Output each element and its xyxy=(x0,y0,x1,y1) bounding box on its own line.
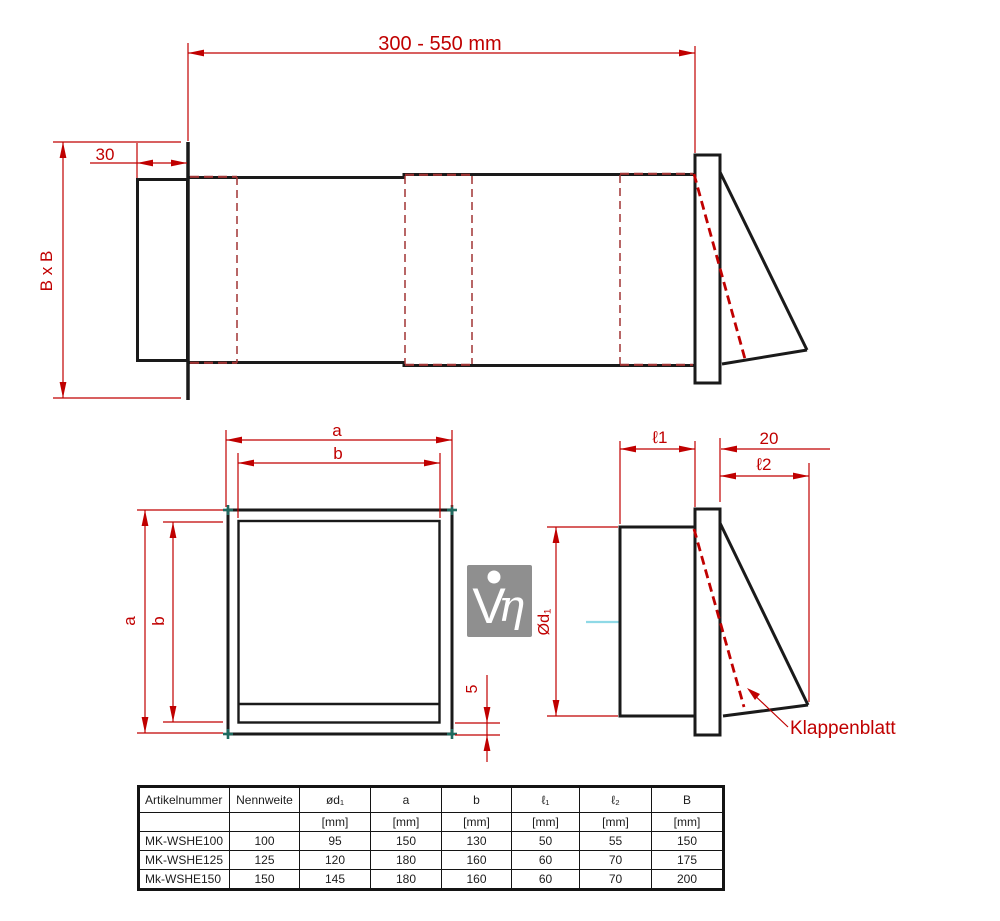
table-cell: 200 xyxy=(652,870,724,890)
hood-bottom-side-view xyxy=(723,705,808,716)
table-cell: Mk-WSHE150 xyxy=(139,870,230,890)
hidden-overlap-lines xyxy=(190,174,693,365)
drawing-canvas: 300 - 550 mm 30 B x B xyxy=(0,0,1000,921)
front-view xyxy=(223,505,457,739)
l2-dimension-label: ℓ2 xyxy=(756,455,772,474)
side-view xyxy=(586,509,808,735)
table-cell: MK-WSHE100 xyxy=(139,832,230,851)
col-header-artikelnummer: Artikelnummer xyxy=(139,787,230,813)
table-units-row: [mm] [mm] [mm] [mm] [mm] [mm] xyxy=(139,813,724,832)
unit-cell: [mm] xyxy=(580,813,652,832)
top-view-dimensions xyxy=(53,43,695,398)
hood-slant-top-view xyxy=(720,172,807,350)
table-cell: 70 xyxy=(580,851,652,870)
unit-cell: [mm] xyxy=(512,813,580,832)
table-cell: 175 xyxy=(652,851,724,870)
unit-cell: [mm] xyxy=(371,813,442,832)
col-header-d1: ød₁ xyxy=(300,787,371,813)
inner-frame xyxy=(239,521,440,723)
hood-bottom-top-view xyxy=(722,350,807,364)
col-header-a: a xyxy=(371,787,442,813)
table-cell: 150 xyxy=(652,832,724,851)
outer-width-label: a xyxy=(332,421,342,440)
logo-letter-eta: η xyxy=(498,581,524,632)
table-cell: 120 xyxy=(300,851,371,870)
table-cell: 55 xyxy=(580,832,652,851)
screw-icon xyxy=(447,729,457,739)
table-cell: 50 xyxy=(512,832,580,851)
table-cell: 130 xyxy=(442,832,512,851)
table-header-row: Artikelnummer Nennweite ød₁ a b ℓ₁ ℓ₂ B xyxy=(139,787,724,813)
col-header-B: B xyxy=(652,787,724,813)
front-view-dimensions xyxy=(137,430,500,762)
col-header-nennweite: Nennweite xyxy=(230,787,300,813)
flange-dimension-label: 30 xyxy=(96,145,115,164)
unit-cell xyxy=(230,813,300,832)
top-view-arrowheads xyxy=(60,50,695,398)
inner-height-label: b xyxy=(149,616,168,625)
duct-stub xyxy=(620,527,697,716)
table-cell: MK-WSHE125 xyxy=(139,851,230,870)
brand-logo: V η xyxy=(467,565,532,637)
plate-thickness-label: 20 xyxy=(760,429,779,448)
l1-dimension-label: ℓ1 xyxy=(652,428,668,447)
length-dimension-label: 300 - 550 mm xyxy=(378,33,501,55)
screw-icon xyxy=(223,729,233,739)
hood-slant-side-view xyxy=(720,523,808,705)
dimensions-table: Artikelnummer Nennweite ød₁ a b ℓ₁ ℓ₂ B … xyxy=(137,785,725,891)
table-cell: 100 xyxy=(230,832,300,851)
hidden-joint-lines xyxy=(237,175,620,364)
col-header-b: b xyxy=(442,787,512,813)
col-header-l2: ℓ₂ xyxy=(580,787,652,813)
outer-frame xyxy=(228,510,452,734)
table-cell: 150 xyxy=(371,832,442,851)
outer-height-label: a xyxy=(120,616,139,626)
unit-cell: [mm] xyxy=(300,813,371,832)
unit-cell: [mm] xyxy=(442,813,512,832)
unit-cell xyxy=(139,813,230,832)
table-cell: 145 xyxy=(300,870,371,890)
table-cell: 180 xyxy=(371,851,442,870)
screw-icon xyxy=(223,505,233,515)
table-cell: 160 xyxy=(442,851,512,870)
table-cell: 60 xyxy=(512,870,580,890)
table-cell: 125 xyxy=(230,851,300,870)
table-row: MK-WSHE125 125 120 180 160 60 70 175 xyxy=(139,851,724,870)
table-cell: 150 xyxy=(230,870,300,890)
table-cell: 160 xyxy=(442,870,512,890)
table-row: Mk-WSHE150 150 145 180 160 60 70 200 xyxy=(139,870,724,890)
table-cell: 60 xyxy=(512,851,580,870)
duct-size-dimension-label: B x B xyxy=(37,251,56,292)
col-header-l1: ℓ₁ xyxy=(512,787,580,813)
diameter-dimension-label: Ød₁ xyxy=(536,609,553,636)
inner-width-label: b xyxy=(333,444,342,463)
gap-dimension-label: 5 xyxy=(464,684,481,693)
technical-drawing-page: 300 - 550 mm 30 B x B xyxy=(0,0,1000,921)
table-row: MK-WSHE100 100 95 150 130 50 55 150 xyxy=(139,832,724,851)
flap-label: Klappenblatt xyxy=(790,718,896,739)
flange-box xyxy=(138,180,188,361)
table-cell: 70 xyxy=(580,870,652,890)
top-view xyxy=(138,142,808,400)
table-cell: 180 xyxy=(371,870,442,890)
table-cell: 95 xyxy=(300,832,371,851)
unit-cell: [mm] xyxy=(652,813,724,832)
